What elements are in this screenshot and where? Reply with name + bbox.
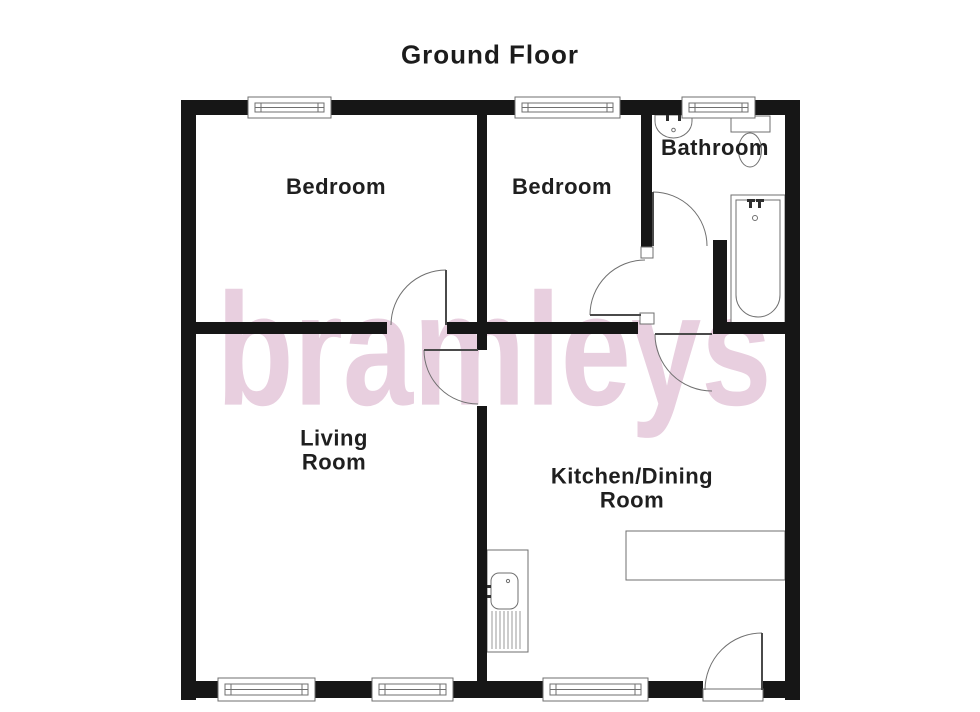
bath-tap: [749, 201, 752, 208]
wall: [181, 100, 248, 115]
wall: [477, 406, 487, 681]
wall: [641, 115, 652, 247]
wall: [477, 115, 487, 332]
room-label-bathroom: Bathroom: [661, 136, 769, 160]
door-jamb: [641, 247, 653, 258]
floorplan-svg: [0, 0, 980, 712]
kitchen-counter: [626, 531, 785, 580]
room-label-kitchen-dining-room: Kitchen/Dining Room: [551, 464, 713, 512]
bedroom1-door-arc: [391, 270, 446, 325]
wall: [331, 100, 515, 115]
kitchen-entry-door-arc: [705, 633, 762, 690]
floorplan-page: bramleys Ground Floor Bedroom Bedroom Ba…: [0, 0, 980, 712]
wall: [620, 100, 682, 115]
room-label-living-room: Living Room: [300, 426, 368, 474]
page-title: Ground Floor: [401, 40, 579, 71]
door-threshold: [703, 689, 763, 701]
wall: [713, 240, 727, 334]
wall: [315, 681, 372, 698]
wall: [785, 100, 800, 700]
room-label-bedroom-2: Bedroom: [512, 175, 612, 199]
wall: [196, 322, 387, 334]
wall: [181, 681, 218, 698]
bathroom-door-arc: [653, 192, 707, 246]
wall: [447, 322, 638, 334]
living-room-door-arc: [424, 350, 478, 404]
wall: [477, 334, 487, 350]
hall-kitchen-door-arc: [655, 334, 712, 391]
room-label-bedroom-1: Bedroom: [286, 175, 386, 199]
wall: [755, 100, 800, 115]
basin-tap: [666, 114, 669, 121]
wall: [453, 681, 543, 698]
bath-tap: [758, 201, 761, 208]
wall: [181, 100, 196, 700]
door-jamb: [640, 313, 654, 324]
basin-tap: [678, 114, 681, 121]
wall: [763, 681, 800, 698]
bedroom2-door-arc: [590, 260, 645, 315]
wall: [648, 681, 703, 698]
